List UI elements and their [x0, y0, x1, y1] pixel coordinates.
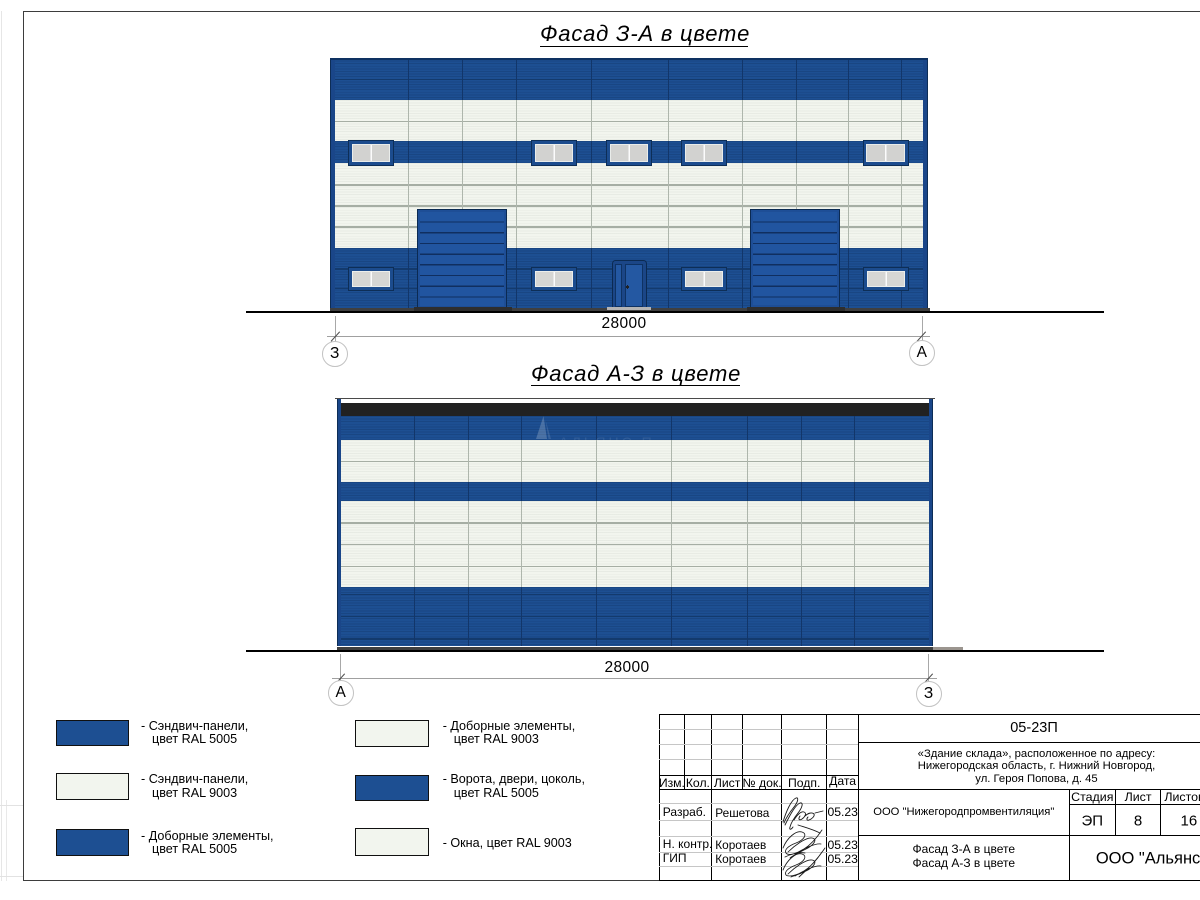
svg-text:АЛЬЯНС ПРОЕКТ: АЛЬЯНС ПРОЕКТ: [559, 434, 655, 441]
